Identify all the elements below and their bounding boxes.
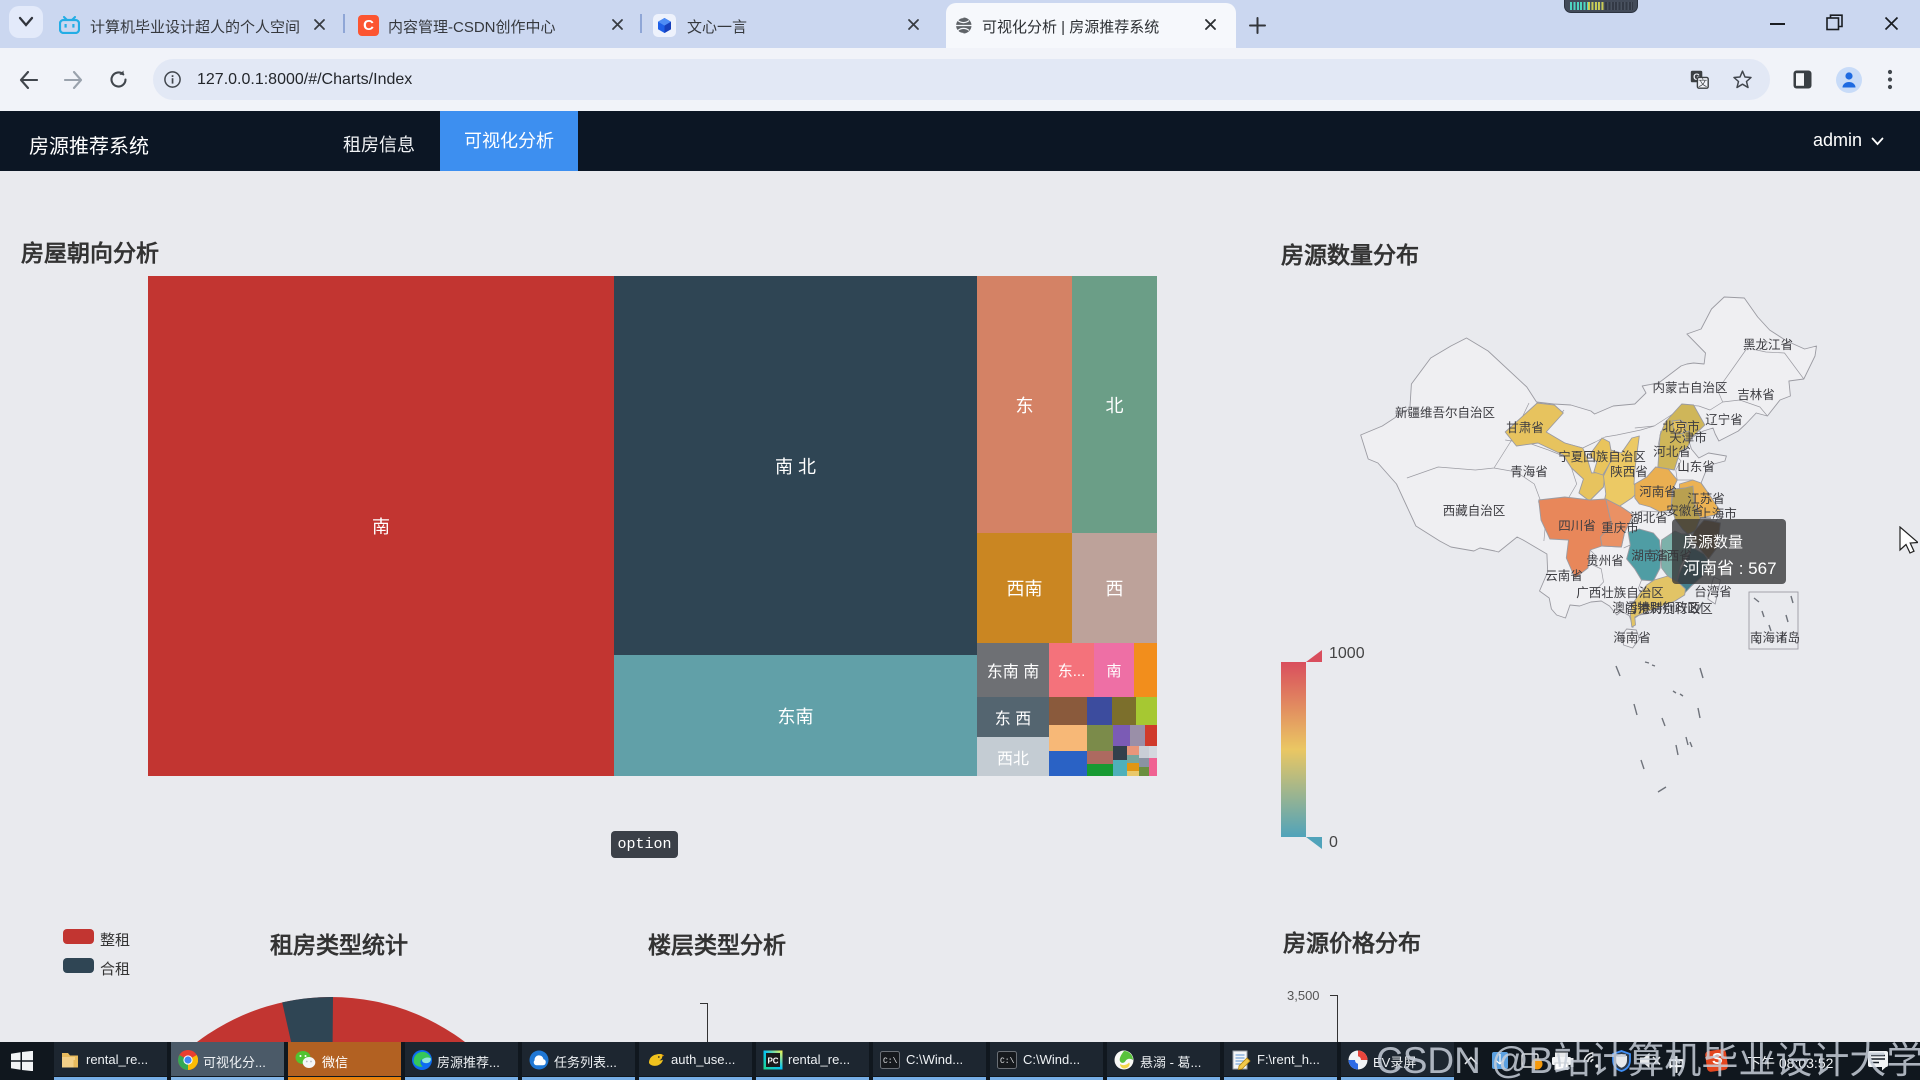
svg-text:安徽省: 安徽省	[1666, 503, 1704, 518]
svg-text:黑龙江省: 黑龙江省	[1743, 338, 1793, 352]
svg-text:PC: PC	[767, 1056, 778, 1065]
svg-text:重庆市: 重庆市	[1601, 520, 1639, 535]
svg-text:南海诸岛: 南海诸岛	[1750, 630, 1800, 645]
svg-text:云南省: 云南省	[1545, 568, 1583, 583]
svg-text:C:\: C:\	[883, 1057, 898, 1066]
svg-text:广西壮族自治区: 广西壮族自治区	[1576, 586, 1664, 600]
svg-text:青海省: 青海省	[1510, 464, 1548, 479]
svg-text:宁夏回族自治区: 宁夏回族自治区	[1558, 449, 1646, 464]
svg-text:山东省: 山东省	[1677, 460, 1715, 474]
svg-text:河北省: 河北省	[1653, 445, 1691, 459]
svg-text:陕西省: 陕西省	[1610, 464, 1648, 479]
svg-text:文: 文	[1698, 77, 1707, 88]
svg-text:内蒙古自治区: 内蒙古自治区	[1652, 380, 1727, 395]
svg-text:台湾省: 台湾省	[1694, 584, 1732, 599]
svg-text:甘肃省: 甘肃省	[1506, 421, 1544, 435]
svg-text:香港特别行政区: 香港特别行政区	[1625, 601, 1713, 616]
svg-text:吉林省: 吉林省	[1737, 388, 1775, 402]
svg-text:西藏自治区: 西藏自治区	[1443, 504, 1506, 518]
svg-text:四川省: 四川省	[1558, 519, 1596, 533]
svg-text:河南省: 河南省	[1639, 484, 1677, 499]
svg-text:新疆维吾尔自治区: 新疆维吾尔自治区	[1395, 405, 1495, 420]
svg-text:C:\: C:\	[1000, 1057, 1015, 1066]
svg-text:天津市: 天津市	[1669, 430, 1707, 445]
svg-text:贵州省: 贵州省	[1586, 554, 1624, 568]
svg-text:海南省: 海南省	[1613, 630, 1651, 645]
svg-text:辽宁省: 辽宁省	[1705, 412, 1743, 427]
